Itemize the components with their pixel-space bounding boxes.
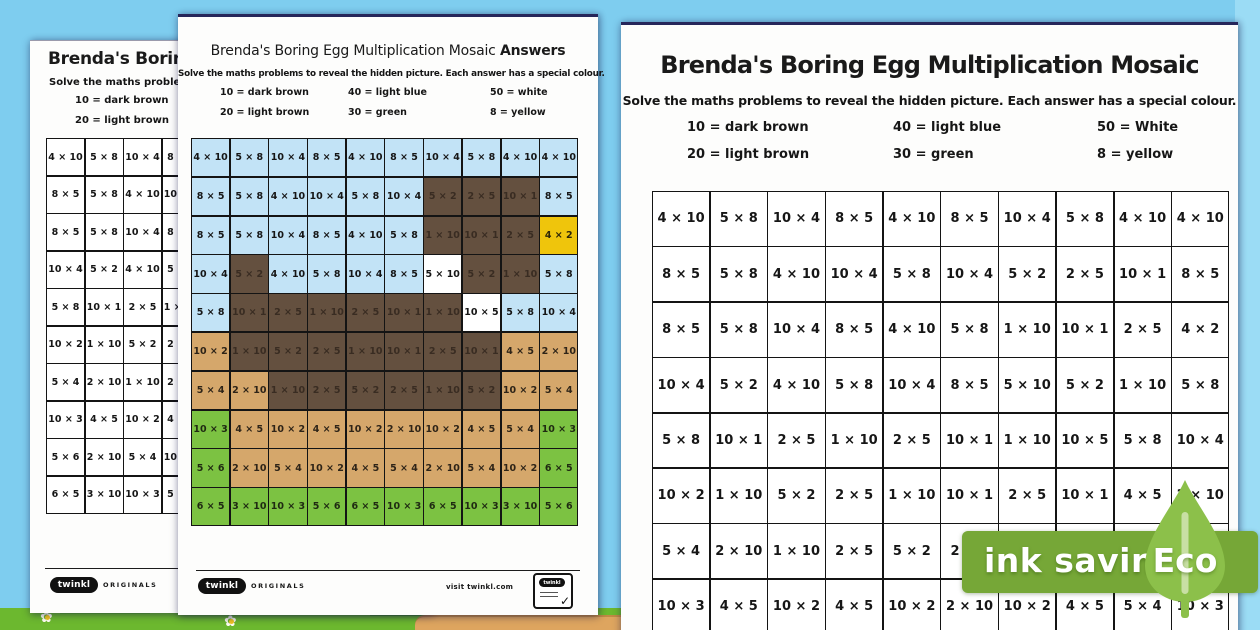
grid-cell: 10 × 2 xyxy=(768,580,824,630)
grid-cell: 4 × 5 xyxy=(711,580,767,630)
grid-cell: 2 × 10 xyxy=(86,439,123,475)
grid-cell: 10 × 4 xyxy=(124,139,161,175)
grid-cell: 5 × 8 xyxy=(86,139,123,175)
grid-cell: 2 × 5 xyxy=(347,294,384,331)
grid-cell: 1 × 10 xyxy=(1115,358,1171,412)
footer-divider xyxy=(196,570,580,571)
grid-cell: 2 × 10 xyxy=(424,449,461,486)
grid-cell: 5 × 2 xyxy=(424,178,461,215)
grid-cell: 4 × 10 xyxy=(347,139,384,176)
grid-cell: 5 × 8 xyxy=(502,294,539,331)
grid-cell: 2 × 5 xyxy=(502,217,539,254)
grid-cell: 10 × 4 xyxy=(941,247,997,301)
colour-key-row: 10 = dark brown40 = light blue50 = white xyxy=(220,87,548,98)
twinkl-brand: twinkl ORIGINALS xyxy=(50,577,157,593)
grid-cell: 1 × 10 xyxy=(999,303,1055,357)
grid-cell: 5 × 2 xyxy=(231,255,268,292)
grid-cell: 8 × 5 xyxy=(540,178,577,215)
grid-cell: 10 × 1 xyxy=(1115,247,1171,301)
grid-cell: 2 × 10 xyxy=(711,524,767,578)
twinkl-logo: twinkl xyxy=(198,578,246,594)
grid-cell: 5 × 2 xyxy=(347,372,384,409)
grid-cell: 10 × 4 xyxy=(308,178,345,215)
grid-cell: 5 × 8 xyxy=(231,139,268,176)
grid-cell: 1 × 10 xyxy=(347,333,384,370)
grid-cell: 2 × 5 xyxy=(385,372,422,409)
grid-cell: 10 × 2 xyxy=(884,580,940,630)
grid-cell: 8 × 5 xyxy=(385,139,422,176)
grid-cell: 2 × 5 xyxy=(308,372,345,409)
grid-cell: 8 × 5 xyxy=(192,217,229,254)
grid-cell: 5 × 4 xyxy=(502,411,539,448)
grid-cell: 4 × 5 xyxy=(308,411,345,448)
grid-cell: 5 × 2 xyxy=(463,255,500,292)
originals-label: ORIGINALS xyxy=(103,581,157,589)
grid-cell: 8 × 5 xyxy=(47,177,84,213)
grid-cell: 2 × 5 xyxy=(884,414,940,468)
grid-cell: 10 × 3 xyxy=(124,477,161,513)
grid-cell: 5 × 8 xyxy=(653,414,709,468)
grid-cell: 5 × 6 xyxy=(540,488,577,525)
grid-cell: 10 × 4 xyxy=(347,255,384,292)
grid-cell: 10 × 4 xyxy=(1172,414,1228,468)
grid-cell: 10 × 1 xyxy=(231,294,268,331)
grid-cell: 10 × 4 xyxy=(269,139,306,176)
grid-cell: 2 × 5 xyxy=(999,469,1055,523)
twinkl-stamp-icon: twinkl ✓ xyxy=(533,573,573,609)
grid-cell: 10 × 3 xyxy=(463,488,500,525)
grid-cell: 10 × 1 xyxy=(941,414,997,468)
grid-cell: 5 × 8 xyxy=(941,303,997,357)
grid-cell: 8 × 5 xyxy=(826,192,882,246)
grid-cell: 4 × 10 xyxy=(884,303,940,357)
grid-cell: 10 × 4 xyxy=(884,358,940,412)
grid-cell: 4 × 10 xyxy=(502,139,539,176)
grid-cell: 5 × 2 xyxy=(463,372,500,409)
grid-cell: 4 × 5 xyxy=(231,411,268,448)
grid-cell: 8 × 5 xyxy=(941,358,997,412)
grid-cell: 5 × 4 xyxy=(653,524,709,578)
grid-cell: 4 × 10 xyxy=(768,247,824,301)
grid-cell: 10 × 4 xyxy=(192,255,229,292)
grid-cell: 4 × 10 xyxy=(269,178,306,215)
grid-cell: 10 × 2 xyxy=(47,327,84,363)
key-item: 20 = light brown xyxy=(75,115,169,126)
grid-cell: 1 × 10 xyxy=(269,372,306,409)
grid-cell: 1 × 10 xyxy=(999,414,1055,468)
grid-cell: 10 × 4 xyxy=(385,178,422,215)
grid-cell: 5 × 2 xyxy=(711,358,767,412)
grid-cell: 3 × 10 xyxy=(86,477,123,513)
grid-cell: 6 × 5 xyxy=(347,488,384,525)
grid-cell: 2 × 5 xyxy=(1057,247,1113,301)
grid-cell: 2 × 5 xyxy=(768,414,824,468)
grid-cell: 2 × 10 xyxy=(540,333,577,370)
grid-cell: 10 × 1 xyxy=(941,469,997,523)
grid-cell: 8 × 5 xyxy=(385,255,422,292)
grid-cell: 10 × 1 xyxy=(385,333,422,370)
key-item: 30 = green xyxy=(348,107,490,118)
grid-cell: 4 × 5 xyxy=(502,333,539,370)
key-item: 20 = light brown xyxy=(687,147,893,162)
grid-cell: 4 × 10 xyxy=(1115,192,1171,246)
grid-cell: 2 × 10 xyxy=(231,372,268,409)
grid-cell: 5 × 8 xyxy=(711,192,767,246)
grid-cell: 10 × 2 xyxy=(124,402,161,438)
grid-cell: 4 × 2 xyxy=(540,217,577,254)
grid-cell: 5 × 8 xyxy=(86,177,123,213)
grid-cell: 5 × 2 xyxy=(999,247,1055,301)
grid-cell: 1 × 10 xyxy=(884,469,940,523)
grid-cell: 1 × 10 xyxy=(424,217,461,254)
grid-cell: 10 × 4 xyxy=(540,294,577,331)
grid-cell: 1 × 10 xyxy=(826,414,882,468)
grid-cell: 5 × 8 xyxy=(711,303,767,357)
grid-cell: 10 × 5 xyxy=(1057,414,1113,468)
grid-cell: 5 × 8 xyxy=(231,178,268,215)
grid-cell: 6 × 5 xyxy=(192,488,229,525)
grid-cell: 8 × 5 xyxy=(308,139,345,176)
grid-cell: 10 × 4 xyxy=(653,358,709,412)
grid-cell: 10 × 2 xyxy=(347,411,384,448)
grid-cell: 10 × 1 xyxy=(711,414,767,468)
grid-cell: 5 × 2 xyxy=(124,327,161,363)
grid-cell: 10 × 4 xyxy=(269,217,306,254)
grid-cell: 8 × 5 xyxy=(1172,247,1228,301)
grid-cell: 2 × 5 xyxy=(826,524,882,578)
page-title: Brenda's Borin xyxy=(48,49,185,69)
grid-cell: 2 × 5 xyxy=(463,178,500,215)
twinkl-brand: twinkl ORIGINALS xyxy=(198,578,305,594)
grid-cell: 10 × 3 xyxy=(653,580,709,630)
grid-cell: 5 × 8 xyxy=(385,217,422,254)
grid-cell: 10 × 1 xyxy=(463,217,500,254)
grid-cell: 4 × 10 xyxy=(47,139,84,175)
grid-cell: 5 × 2 xyxy=(86,252,123,288)
grid-cell: 1 × 10 xyxy=(124,364,161,400)
path-patch xyxy=(415,615,645,630)
key-item: 8 = yellow xyxy=(1097,147,1173,162)
grid-cell: 5 × 4 xyxy=(192,372,229,409)
grid-cell: 8 × 5 xyxy=(941,192,997,246)
grid-cell: 10 × 1 xyxy=(463,333,500,370)
grid-cell: 2 × 10 xyxy=(385,411,422,448)
originals-label: ORIGINALS xyxy=(251,582,305,590)
grid-cell: 2 × 10 xyxy=(231,449,268,486)
grid-cell: 5 × 8 xyxy=(47,289,84,325)
grid-cell: 2 × 5 xyxy=(1115,303,1171,357)
grid-cell: 5 × 8 xyxy=(1057,192,1113,246)
grid-cell: 8 × 5 xyxy=(653,247,709,301)
grid-cell: 2 × 5 xyxy=(308,333,345,370)
grid-cell: 4 × 10 xyxy=(124,252,161,288)
twinkl-logo: twinkl xyxy=(50,577,98,593)
key-item: 50 = white xyxy=(490,87,548,98)
preview-canvas: ✿ ✿ Brenda's Borin Solve the maths probl… xyxy=(0,0,1260,630)
key-item: 10 = dark brown xyxy=(687,120,893,135)
grid-cell: 2 × 5 xyxy=(269,294,306,331)
grid-cell: 2 × 5 xyxy=(424,333,461,370)
grid-cell: 8 × 5 xyxy=(192,178,229,215)
page-subtitle: Solve the maths problems to reveal the h… xyxy=(178,69,598,79)
grid-cell: 10 × 2 xyxy=(502,449,539,486)
grid-cell: 10 × 3 xyxy=(47,402,84,438)
grid-cell: 8 × 5 xyxy=(308,217,345,254)
grid-cell: 1 × 10 xyxy=(768,524,824,578)
grid-cell: 4 × 10 xyxy=(1172,192,1228,246)
grid-cell: 5 × 4 xyxy=(463,449,500,486)
key-item: 20 = light brown xyxy=(220,107,348,118)
grid-cell: 6 × 5 xyxy=(424,488,461,525)
grid-cell: 10 × 2 xyxy=(424,411,461,448)
grid-cell: 5 × 8 xyxy=(463,139,500,176)
grid-cell: 1 × 10 xyxy=(424,372,461,409)
grid-cell: 5 × 8 xyxy=(86,214,123,250)
grid-cell: 5 × 8 xyxy=(192,294,229,331)
title-main: Brenda's Boring Egg Multiplication Mosai… xyxy=(211,43,500,59)
grid-cell: 2 × 10 xyxy=(86,364,123,400)
grid-cell: 1 × 10 xyxy=(424,294,461,331)
grid-cell: 10 × 2 xyxy=(192,333,229,370)
grid-cell: 10 × 4 xyxy=(424,139,461,176)
grid-cell: 4 × 10 xyxy=(192,139,229,176)
grid-cell: 5 × 8 xyxy=(308,255,345,292)
grid-cell: 10 × 2 xyxy=(653,469,709,523)
page-title: Brenda's Boring Egg Multiplication Mosai… xyxy=(178,43,598,59)
check-icon: ✓ xyxy=(560,594,570,608)
grid-cell: 3 × 10 xyxy=(502,488,539,525)
stamp-line xyxy=(540,592,558,593)
grid-cell: 4 × 10 xyxy=(124,177,161,213)
grid-cell: 10 × 2 xyxy=(308,449,345,486)
grid-cell: 1 × 10 xyxy=(308,294,345,331)
key-item: 40 = light blue xyxy=(893,120,1097,135)
title-answers: Answers xyxy=(500,43,565,59)
grid-cell: 6 × 5 xyxy=(540,449,577,486)
grid-cell: 1 × 10 xyxy=(231,333,268,370)
grid-cell: 2 × 5 xyxy=(124,289,161,325)
grid-cell: 5 × 6 xyxy=(192,449,229,486)
grid-cell: 4 × 10 xyxy=(347,217,384,254)
grid-cell: 4 × 10 xyxy=(653,192,709,246)
grid-cell: 10 × 3 xyxy=(385,488,422,525)
grid-cell: 4 × 5 xyxy=(86,402,123,438)
grid-cell: 5 × 2 xyxy=(1057,358,1113,412)
eco-label: Eco xyxy=(1139,541,1231,580)
grid-cell: 4 × 10 xyxy=(540,139,577,176)
grid-cell: 5 × 4 xyxy=(269,449,306,486)
grid-cell: 10 × 1 xyxy=(502,178,539,215)
grid-cell: 4 × 5 xyxy=(826,580,882,630)
grid-cell: 10 × 4 xyxy=(999,192,1055,246)
grid-cell: 5 × 8 xyxy=(1115,414,1171,468)
grid-cell: 4 × 10 xyxy=(269,255,306,292)
grid-cell: 1 × 10 xyxy=(86,327,123,363)
answers-page: Brenda's Boring Egg Multiplication Mosai… xyxy=(178,14,598,615)
grid-cell: 5 × 4 xyxy=(124,439,161,475)
grid-cell: 5 × 4 xyxy=(540,372,577,409)
grid-cell: 10 × 4 xyxy=(124,214,161,250)
grid-cell: 10 × 1 xyxy=(385,294,422,331)
colour-key-row: 20 = light brown30 = green8 = yellow xyxy=(687,147,1173,162)
key-item: 8 = yellow xyxy=(490,107,546,118)
grid-cell: 8 × 5 xyxy=(47,214,84,250)
grid-cell: 5 × 8 xyxy=(540,255,577,292)
key-item: 10 = dark brown xyxy=(75,95,169,106)
grid-cell: 5 × 2 xyxy=(884,524,940,578)
key-item: 10 = dark brown xyxy=(220,87,348,98)
grid-cell: 1 × 10 xyxy=(711,469,767,523)
grid-cell: 3 × 10 xyxy=(231,488,268,525)
page-subtitle: Solve the maths problems to reveal the h… xyxy=(621,93,1238,108)
grid-cell: 10 × 2 xyxy=(269,411,306,448)
grid-cell: 10 × 2 xyxy=(502,372,539,409)
page-title: Brenda's Boring Egg Multiplication Mosai… xyxy=(621,51,1238,79)
stamp-line xyxy=(540,596,558,597)
grid-cell: 2 × 5 xyxy=(826,469,882,523)
grid-cell: 10 × 4 xyxy=(826,247,882,301)
grid-cell: 10 × 3 xyxy=(540,411,577,448)
grid-cell: 10 × 4 xyxy=(47,252,84,288)
key-item: 40 = light blue xyxy=(348,87,490,98)
grid-cell: 10 × 1 xyxy=(86,289,123,325)
grid-cell: 4 × 5 xyxy=(463,411,500,448)
grid-cell: 10 × 3 xyxy=(269,488,306,525)
answers-mosaic-grid: 4 × 105 × 810 × 48 × 54 × 108 × 510 × 45… xyxy=(191,138,578,526)
grid-cell: 10 × 1 xyxy=(1057,469,1113,523)
grid-cell: 5 × 2 xyxy=(768,469,824,523)
grid-cell: 1 × 10 xyxy=(502,255,539,292)
grid-cell: 4 × 10 xyxy=(884,192,940,246)
grid-cell: 5 × 4 xyxy=(385,449,422,486)
grid-cell: 5 × 10 xyxy=(424,255,461,292)
grid-cell: 5 × 8 xyxy=(711,247,767,301)
grid-cell: 10 × 5 xyxy=(463,294,500,331)
grid-cell: 10 × 1 xyxy=(1057,303,1113,357)
flower-icon: ✿ xyxy=(224,614,237,629)
key-item: 30 = green xyxy=(893,147,1097,162)
colour-key-row: 10 = dark brown40 = light blue50 = White xyxy=(687,120,1178,135)
grid-cell: 4 × 2 xyxy=(1172,303,1228,357)
grid-cell: 6 × 5 xyxy=(47,477,84,513)
grid-cell: 5 × 4 xyxy=(47,364,84,400)
grid-cell: 5 × 8 xyxy=(1172,358,1228,412)
grid-cell: 5 × 6 xyxy=(47,439,84,475)
grid-cell: 5 × 8 xyxy=(231,217,268,254)
grid-cell: 10 × 3 xyxy=(192,411,229,448)
grid-cell: 5 × 8 xyxy=(884,247,940,301)
grid-cell: 8 × 5 xyxy=(653,303,709,357)
colour-key-row: 20 = light brown30 = green8 = yellow xyxy=(220,107,546,118)
grid-cell: 8 × 5 xyxy=(826,303,882,357)
grid-cell: 4 × 10 xyxy=(768,358,824,412)
key-item: 50 = White xyxy=(1097,120,1178,135)
grid-cell: 5 × 2 xyxy=(269,333,306,370)
grid-cell: 4 × 5 xyxy=(347,449,384,486)
twinkl-logo: twinkl xyxy=(539,578,565,587)
grid-cell: 5 × 6 xyxy=(308,488,345,525)
grid-cell: 10 × 4 xyxy=(768,192,824,246)
grid-cell: 5 × 8 xyxy=(826,358,882,412)
grid-cell: 5 × 10 xyxy=(999,358,1055,412)
grid-cell: 10 × 4 xyxy=(768,303,824,357)
grid-cell: 5 × 8 xyxy=(347,178,384,215)
visit-twinkl-label: visit twinkl.com xyxy=(446,583,513,591)
